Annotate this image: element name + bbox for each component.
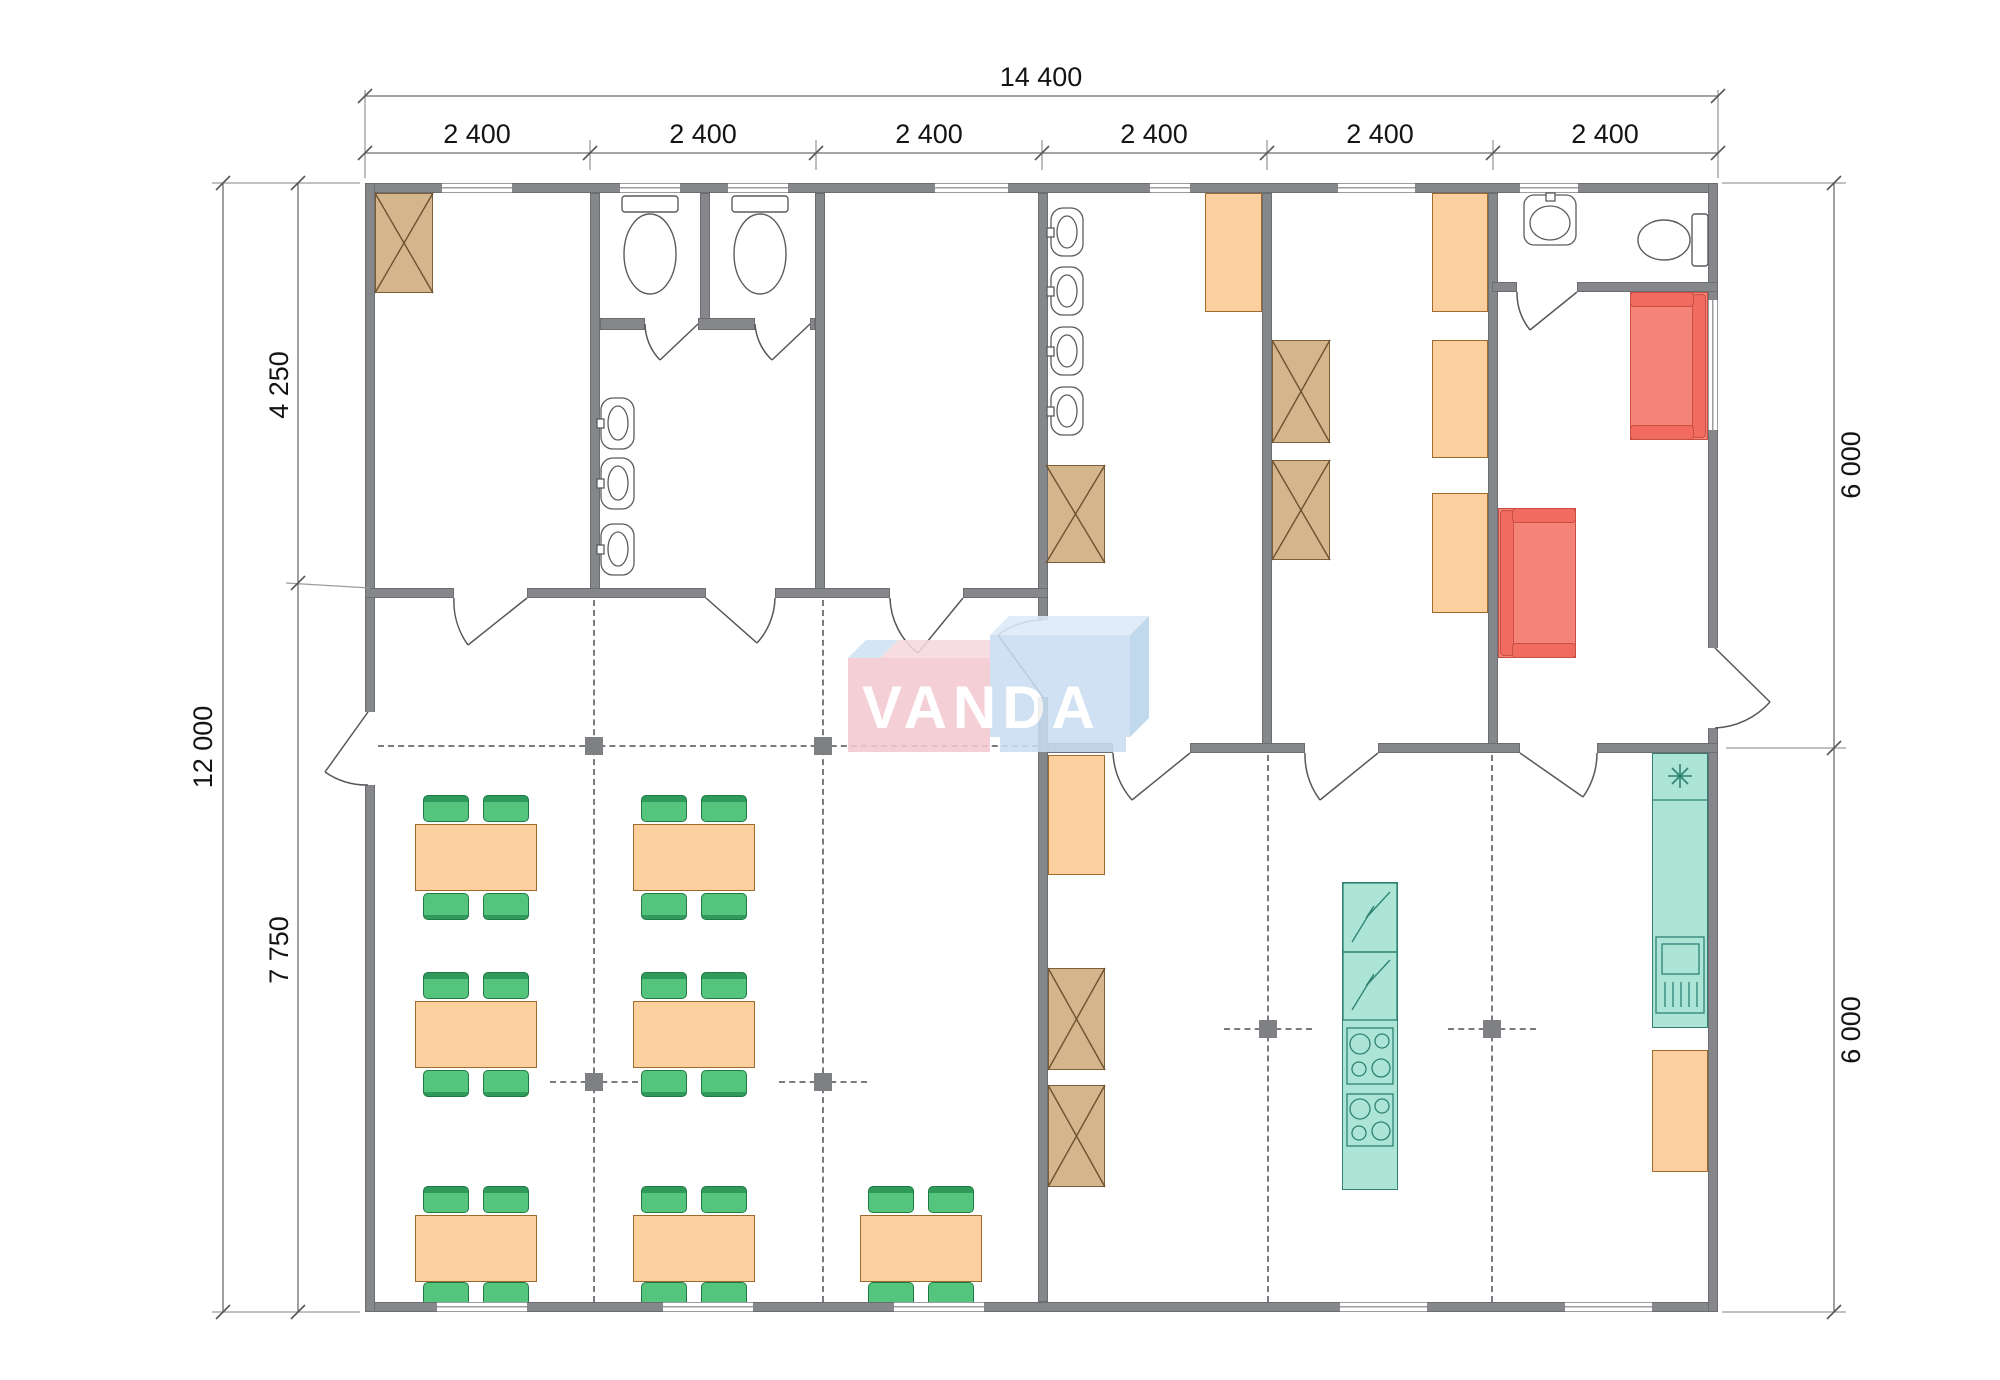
sofa-backrest <box>1500 510 1514 656</box>
window <box>728 183 788 193</box>
plan-overlay: 14 400 2 400 2 400 2 400 2 400 2 400 2 4… <box>0 0 2000 1380</box>
window <box>437 1302 527 1312</box>
interior-wall <box>1577 282 1718 292</box>
watermark-blue-box-top <box>990 616 1149 635</box>
chair <box>701 1186 747 1213</box>
module-line <box>593 600 595 1302</box>
window <box>1150 183 1190 193</box>
chair <box>641 795 687 822</box>
interior-wall <box>698 318 755 330</box>
dining-table <box>633 1001 755 1068</box>
wardrobe-box <box>1048 1085 1105 1187</box>
watermark-pink-box-top <box>848 640 1008 658</box>
interior-wall <box>1488 193 1498 753</box>
sofa-armrest <box>1512 508 1576 523</box>
dining-table <box>860 1215 982 1282</box>
chair <box>483 1186 529 1213</box>
column-marker <box>1259 1020 1277 1038</box>
interior-wall <box>527 588 706 598</box>
cabinet <box>1432 340 1488 458</box>
cabinet <box>1432 493 1488 613</box>
window <box>620 183 680 193</box>
interior-wall <box>1190 743 1305 753</box>
watermark-blue-box <box>990 635 1130 737</box>
watermark-blue-box-side <box>1130 616 1149 737</box>
cabinet <box>1652 1050 1708 1172</box>
window <box>1520 183 1578 193</box>
column-marker <box>814 737 832 755</box>
interior-wall <box>775 588 890 598</box>
dim-segment: 7 750 <box>264 916 294 984</box>
dim-overall-width: 14 400 <box>1000 62 1083 92</box>
dim-overall-height: 12 000 <box>188 706 218 789</box>
chair <box>423 1070 469 1097</box>
interior-wall <box>815 193 825 598</box>
interior-wall <box>963 588 1048 598</box>
wardrobe-box <box>1272 460 1330 560</box>
vanda-watermark: VANDA <box>848 616 1149 752</box>
kitchen-island <box>1342 882 1398 1190</box>
interior-wall <box>1048 743 1113 753</box>
dim-segment: 2 400 <box>1571 119 1639 149</box>
module-line <box>378 745 1038 747</box>
chair <box>641 893 687 920</box>
chair <box>641 1186 687 1213</box>
dining-table <box>415 1215 537 1282</box>
interior-wall <box>700 193 710 324</box>
chair <box>483 893 529 920</box>
dining-table <box>415 824 537 891</box>
chair <box>701 1070 747 1097</box>
interior-wall <box>1597 743 1718 753</box>
exterior-wall-bottom <box>365 1302 1718 1312</box>
module-line <box>822 600 824 1302</box>
chair <box>928 1186 974 1213</box>
watermark-text: VANDA <box>862 674 1101 741</box>
sofa-backrest <box>1692 294 1706 438</box>
interior-wall <box>365 588 454 598</box>
dim-segment: 2 400 <box>669 119 737 149</box>
dim-segment: 2 400 <box>895 119 963 149</box>
chair <box>641 972 687 999</box>
dimension-lines <box>212 89 1846 1319</box>
floor-plan: 14 400 2 400 2 400 2 400 2 400 2 400 2 4… <box>0 0 2000 1380</box>
window <box>1565 1302 1652 1312</box>
dim-segment: 6 000 <box>1836 996 1866 1064</box>
kitchen-counter <box>1652 753 1708 1028</box>
chair <box>483 972 529 999</box>
interior-wall <box>1262 193 1272 753</box>
column-marker <box>814 1073 832 1091</box>
sofa-armrest <box>1630 292 1694 307</box>
dim-segment: 6 000 <box>1836 431 1866 499</box>
door-opening <box>365 712 375 785</box>
chair <box>423 795 469 822</box>
window <box>1338 183 1415 193</box>
chair <box>701 972 747 999</box>
column-marker <box>1483 1020 1501 1038</box>
cabinet <box>1432 193 1488 312</box>
chair <box>423 972 469 999</box>
cabinet <box>1205 193 1262 312</box>
sofa-armrest <box>1512 643 1576 658</box>
column-marker <box>585 737 603 755</box>
dining-table <box>633 1215 755 1282</box>
interior-wall <box>600 318 645 330</box>
dim-segment: 2 400 <box>1120 119 1188 149</box>
chair <box>483 1070 529 1097</box>
window <box>442 183 512 193</box>
interior-wall <box>1492 282 1517 292</box>
chair <box>701 893 747 920</box>
chair <box>641 1070 687 1097</box>
window <box>1708 300 1718 430</box>
interior-wall <box>1378 743 1520 753</box>
dim-segment: 4 250 <box>264 351 294 419</box>
cabinet <box>1048 755 1105 875</box>
wardrobe-box <box>1046 465 1105 563</box>
dim-segment: 2 400 <box>1346 119 1414 149</box>
wardrobe-box <box>375 193 433 293</box>
exterior-wall-top <box>365 183 1718 193</box>
interior-wall <box>1038 697 1048 1302</box>
chair <box>483 795 529 822</box>
toilet-icon <box>622 196 1708 294</box>
window <box>663 1302 753 1312</box>
wardrobe-box <box>1272 340 1330 443</box>
chair <box>423 1186 469 1213</box>
window <box>894 1302 984 1312</box>
chair <box>868 1186 914 1213</box>
interior-wall <box>590 193 600 598</box>
wardrobe-box <box>1048 968 1105 1070</box>
window <box>1340 1302 1427 1312</box>
chair <box>701 795 747 822</box>
watermark-pink-box <box>848 658 990 752</box>
column-marker <box>585 1073 603 1091</box>
window <box>935 183 1008 193</box>
dining-table <box>415 1001 537 1068</box>
dining-table <box>633 824 755 891</box>
watermark-blue-corner <box>848 640 898 658</box>
sofa-armrest <box>1630 425 1694 440</box>
chair <box>423 893 469 920</box>
dim-segment: 2 400 <box>443 119 511 149</box>
interior-wall <box>1038 193 1048 620</box>
door-opening <box>1708 648 1718 728</box>
